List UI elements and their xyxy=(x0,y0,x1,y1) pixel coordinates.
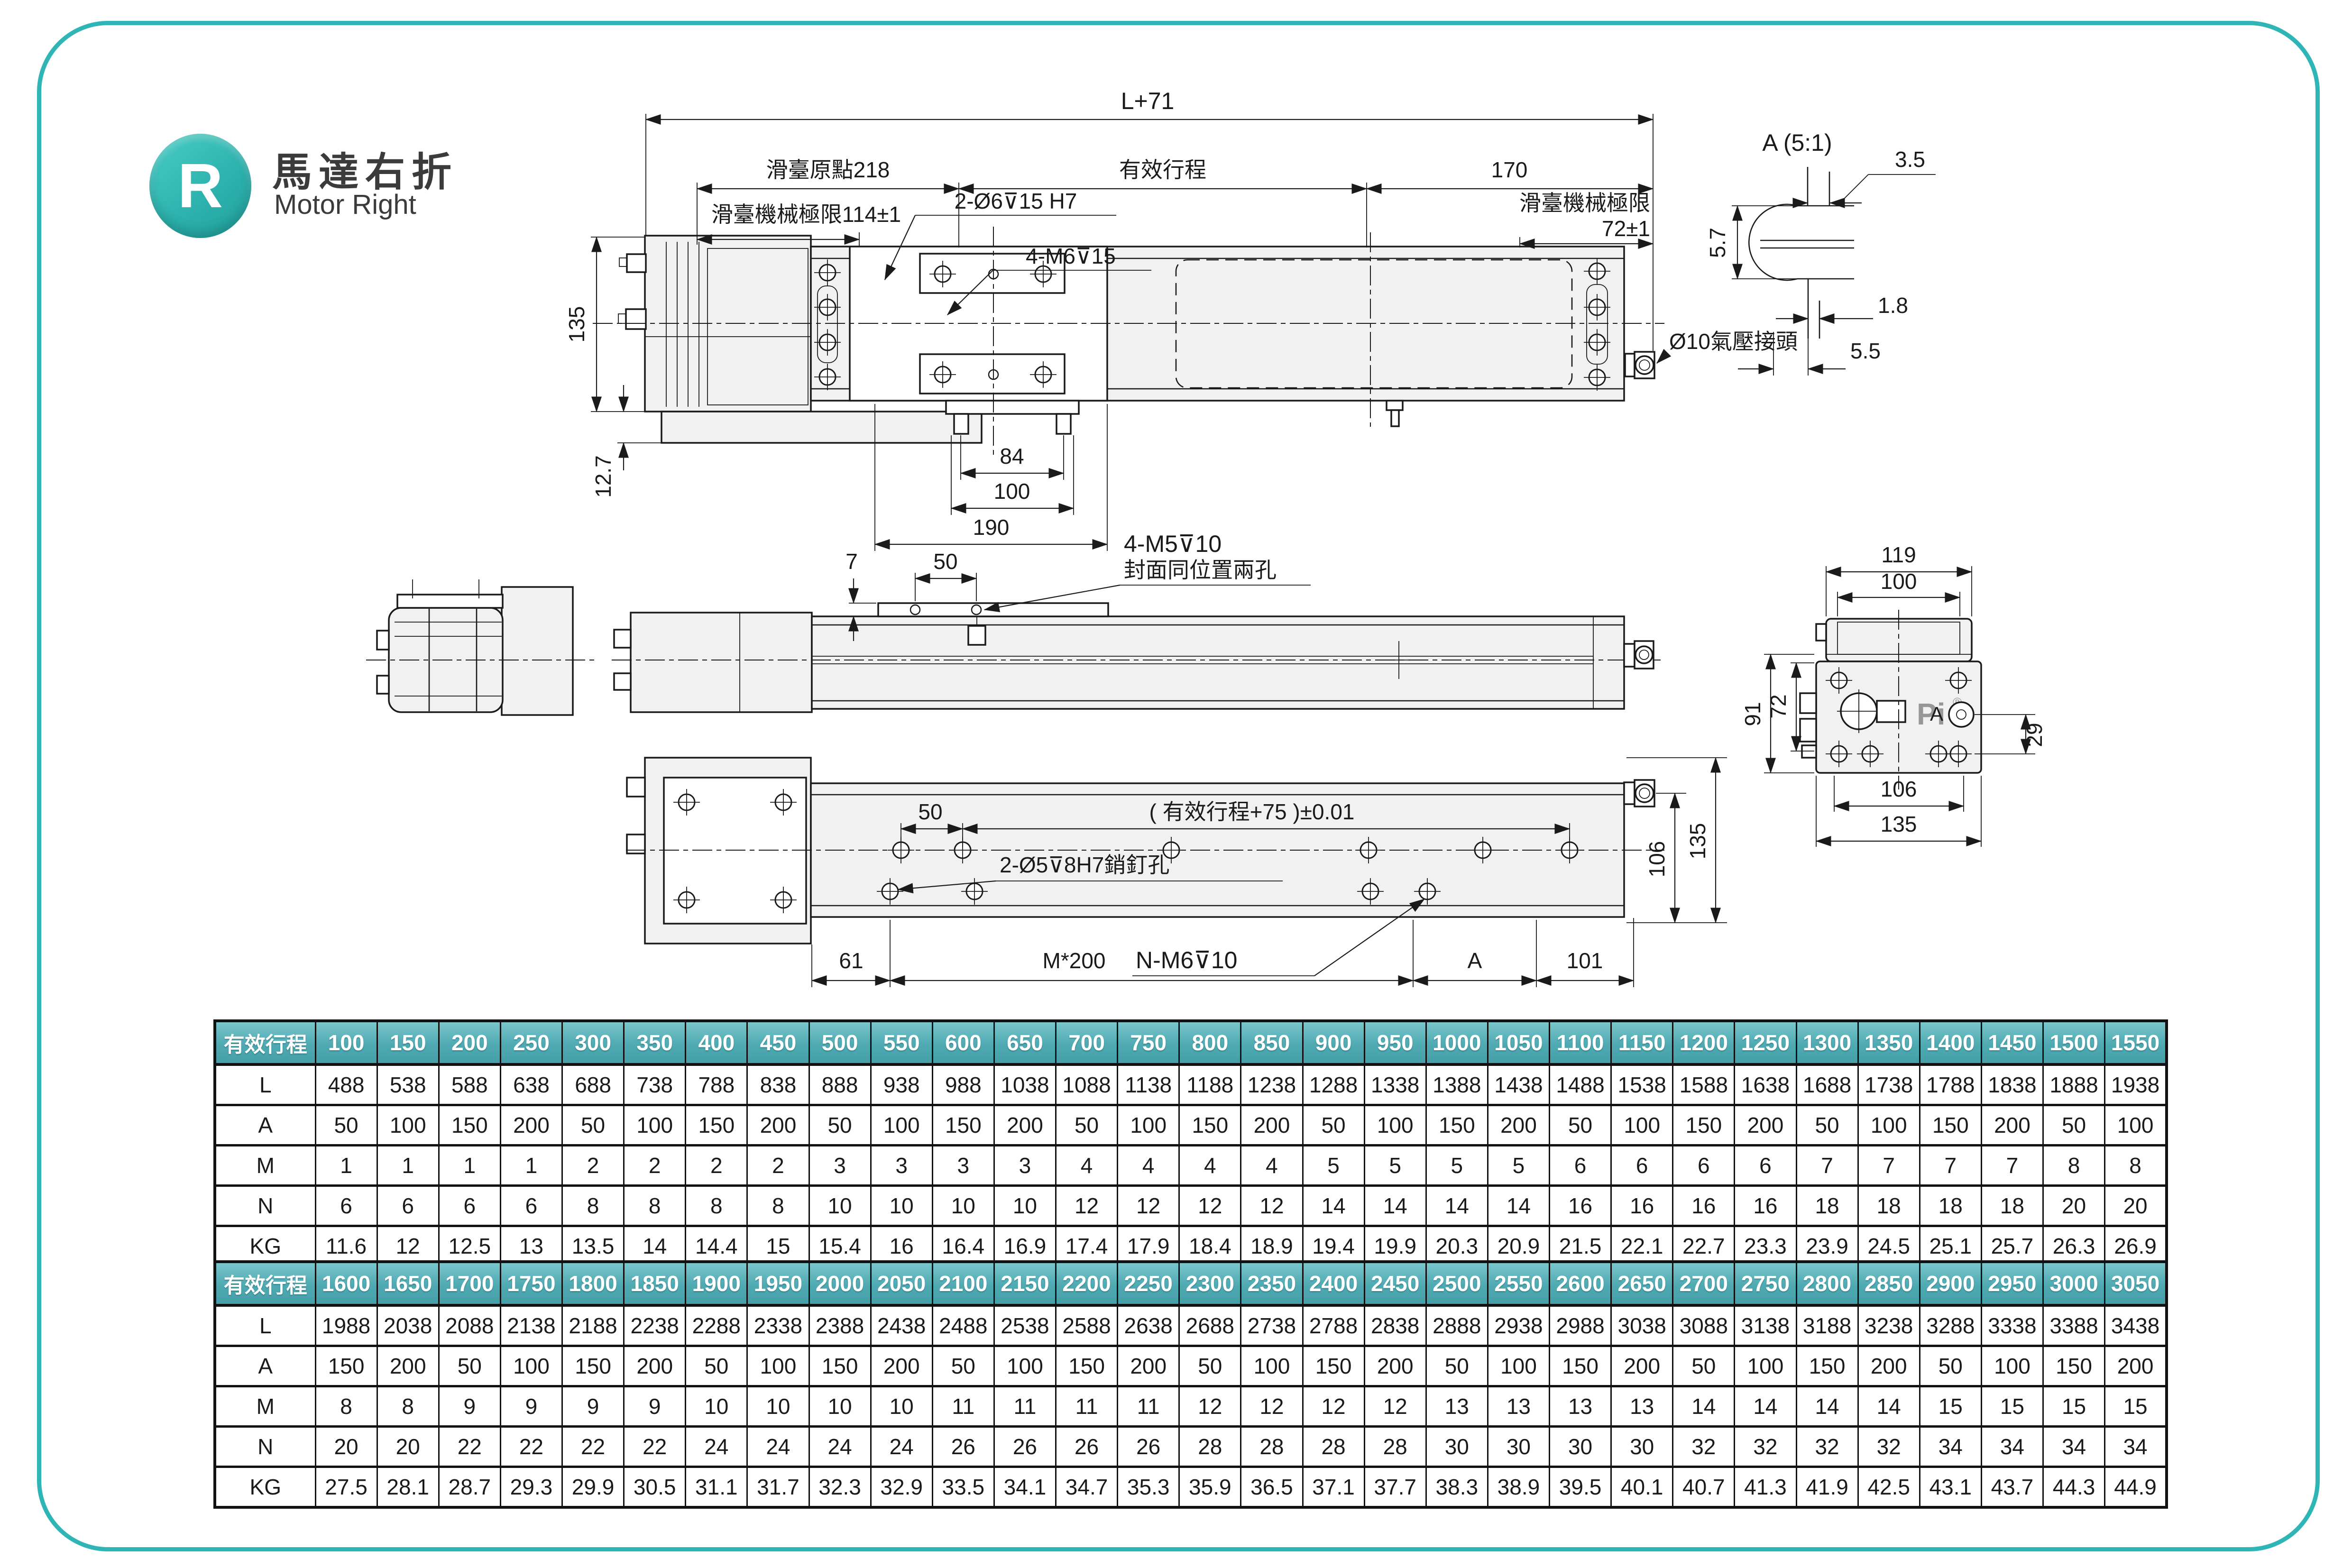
spec-value: 1738 xyxy=(1858,1064,1920,1105)
spec-value: 28.1 xyxy=(377,1467,439,1508)
dim-plate-190: 190 xyxy=(973,515,1010,540)
spec-value: 14 xyxy=(1303,1186,1364,1226)
stroke-column-header: 1200 xyxy=(1673,1021,1735,1064)
stroke-column-header: 2700 xyxy=(1673,1262,1735,1305)
spec-value: 50 xyxy=(1056,1105,1118,1146)
spec-value: 8 xyxy=(2043,1146,2105,1186)
spec-value: 1 xyxy=(377,1146,439,1186)
spec-value: 1 xyxy=(439,1146,500,1186)
spec-value: 11 xyxy=(1118,1386,1179,1427)
spec-value: 26 xyxy=(994,1427,1056,1467)
spec-value: 200 xyxy=(377,1346,439,1386)
spec-value: 2288 xyxy=(686,1305,747,1346)
spec-value: 10 xyxy=(932,1186,994,1226)
spec-value: 50 xyxy=(1796,1105,1858,1146)
spec-value: 50 xyxy=(1303,1105,1364,1146)
table-row: N202022222222242424242626262628282828303… xyxy=(215,1427,2167,1467)
spec-value: 1 xyxy=(315,1146,377,1186)
spec-value: 10 xyxy=(871,1386,932,1427)
stroke-table-1: 有效行程100150200250300350400450500550600650… xyxy=(213,1019,2168,1268)
dim-base-step-12-7: 12.7 xyxy=(591,455,616,498)
spec-value: 150 xyxy=(2043,1346,2105,1386)
spec-value: 14 xyxy=(1364,1186,1426,1226)
stroke-column-header: 1550 xyxy=(2105,1021,2167,1064)
spec-value: 28 xyxy=(1303,1427,1364,1467)
row-label: L xyxy=(215,1305,315,1346)
spec-value: 888 xyxy=(809,1064,871,1105)
spec-value: 8 xyxy=(747,1186,809,1226)
spec-value: 34.7 xyxy=(1056,1467,1118,1508)
detail-a-title: A (5:1) xyxy=(1762,129,1832,156)
spec-value: 28 xyxy=(1241,1427,1303,1467)
spec-value: 7 xyxy=(1981,1146,2043,1186)
spec-value: 14 xyxy=(1426,1186,1488,1226)
spec-value: 14 xyxy=(1858,1386,1920,1427)
spec-value: 150 xyxy=(809,1346,871,1386)
dim-bolts-106: 106 xyxy=(1881,777,1917,801)
table-row: L198820382088213821882238228823382388243… xyxy=(215,1305,2167,1346)
stroke-column-header: 2750 xyxy=(1735,1262,1796,1305)
stroke-column-header: 850 xyxy=(1241,1021,1303,1064)
spec-value: 200 xyxy=(500,1105,562,1146)
spec-value: 100 xyxy=(1858,1105,1920,1146)
dim-holes-50: 50 xyxy=(933,549,957,574)
spec-value: 2488 xyxy=(932,1305,994,1346)
spec-value: 838 xyxy=(747,1064,809,1105)
stroke-column-header: 1350 xyxy=(1858,1021,1920,1064)
table-row: M889999101010101111111112121212131313131… xyxy=(215,1386,2167,1427)
side-view-drawing: 7 50 4-M5⊽10 封面同位置兩孔 xyxy=(366,531,1664,715)
spec-value: 200 xyxy=(1364,1346,1426,1386)
spec-value: 36.5 xyxy=(1241,1467,1303,1508)
spec-value: 6 xyxy=(1673,1146,1735,1186)
spec-value: 30 xyxy=(1426,1427,1488,1467)
spec-value: 100 xyxy=(871,1105,932,1146)
spec-value: 12 xyxy=(1241,1186,1303,1226)
dim-pitch-m200: M*200 xyxy=(1043,948,1106,973)
stroke-column-header: 2900 xyxy=(1920,1262,1981,1305)
spec-value: 8 xyxy=(2105,1146,2167,1186)
stroke-column-header: 800 xyxy=(1179,1021,1241,1064)
spec-value: 100 xyxy=(1118,1105,1179,1146)
stroke-column-header: 2050 xyxy=(871,1262,932,1305)
spec-value: 1438 xyxy=(1488,1064,1549,1105)
spec-value: 31.7 xyxy=(747,1467,809,1508)
spec-value: 1388 xyxy=(1426,1064,1488,1105)
stroke-column-header: 1700 xyxy=(439,1262,500,1305)
spec-value: 34 xyxy=(2043,1427,2105,1467)
spec-value: 200 xyxy=(624,1346,686,1386)
row-label: A xyxy=(215,1105,315,1146)
spec-value: 200 xyxy=(1118,1346,1179,1386)
spec-value: 50 xyxy=(439,1346,500,1386)
spec-value: 11 xyxy=(1056,1386,1118,1427)
spec-value: 1138 xyxy=(1118,1064,1179,1105)
spec-value: 200 xyxy=(747,1105,809,1146)
spec-value: 22 xyxy=(439,1427,500,1467)
note-thread-holes: N-M6⊽10 xyxy=(1136,947,1237,973)
spec-value: 9 xyxy=(562,1386,624,1427)
row-label: M xyxy=(215,1386,315,1427)
spec-value: 100 xyxy=(500,1346,562,1386)
stroke-column-header: 1150 xyxy=(1611,1021,1673,1064)
spec-value: 32.9 xyxy=(871,1467,932,1508)
spec-value: 34 xyxy=(1981,1427,2043,1467)
stroke-column-header: 1400 xyxy=(1920,1021,1981,1064)
spec-value: 4 xyxy=(1241,1146,1303,1186)
spec-value: 37.1 xyxy=(1303,1467,1364,1508)
spec-value: 18 xyxy=(1920,1186,1981,1226)
stroke-column-header: 1900 xyxy=(686,1262,747,1305)
spec-value: 150 xyxy=(1796,1346,1858,1386)
stroke-column-header: 200 xyxy=(439,1021,500,1064)
spec-value: 12 xyxy=(1303,1386,1364,1427)
table-row: N666688881010101012121212141414141616161… xyxy=(215,1186,2167,1226)
spec-value: 150 xyxy=(1056,1346,1118,1386)
dim-pin-50: 50 xyxy=(918,799,942,824)
spec-value: 7 xyxy=(1796,1146,1858,1186)
spec-value: 6 xyxy=(439,1186,500,1226)
spec-value: 13 xyxy=(1488,1386,1549,1427)
stroke-column-header: 550 xyxy=(871,1021,932,1064)
spec-value: 8 xyxy=(686,1186,747,1226)
spec-value: 3288 xyxy=(1920,1305,1981,1346)
spec-value: 28 xyxy=(1179,1427,1241,1467)
stroke-column-header: 1100 xyxy=(1550,1021,1611,1064)
dim-body-91: 91 xyxy=(1740,702,1765,726)
spec-value: 2338 xyxy=(747,1305,809,1346)
spec-value: 50 xyxy=(1179,1346,1241,1386)
spec-value: 4 xyxy=(1179,1146,1241,1186)
bottom-view-drawing: 50 ( 有效行程+75 )±0.01 2-Ø5⊽8H7銷釘孔 61 M*200… xyxy=(626,758,1727,987)
spec-value: 200 xyxy=(994,1105,1056,1146)
stroke-column-header: 2850 xyxy=(1858,1262,1920,1305)
spec-value: 35.3 xyxy=(1118,1467,1179,1508)
stroke-column-header: 300 xyxy=(562,1021,624,1064)
row-label: M xyxy=(215,1146,315,1186)
spec-value: 3 xyxy=(871,1146,932,1186)
spec-value: 2038 xyxy=(377,1305,439,1346)
spec-value: 150 xyxy=(562,1346,624,1386)
stroke-header-label: 有效行程 xyxy=(215,1021,315,1064)
spec-value: 1338 xyxy=(1364,1064,1426,1105)
spec-value: 3338 xyxy=(1981,1305,2043,1346)
spec-value: 50 xyxy=(932,1346,994,1386)
spec-value: 37.7 xyxy=(1364,1467,1426,1508)
spec-value: 7 xyxy=(1858,1146,1920,1186)
spec-value: 16 xyxy=(1550,1186,1611,1226)
stroke-column-header: 600 xyxy=(932,1021,994,1064)
spec-value: 2788 xyxy=(1303,1305,1364,1346)
stroke-column-header: 450 xyxy=(747,1021,809,1064)
spec-value: 12 xyxy=(1118,1186,1179,1226)
spec-value: 2688 xyxy=(1179,1305,1241,1346)
spec-value: 1988 xyxy=(315,1305,377,1346)
spec-value: 150 xyxy=(439,1105,500,1146)
stroke-column-header: 1500 xyxy=(2043,1021,2105,1064)
stroke-column-header: 1850 xyxy=(624,1262,686,1305)
spec-value: 30 xyxy=(1488,1427,1549,1467)
stroke-column-header: 3050 xyxy=(2105,1262,2167,1305)
spec-value: 26 xyxy=(1118,1427,1179,1467)
spec-value: 31.1 xyxy=(686,1467,747,1508)
spec-value: 2088 xyxy=(439,1305,500,1346)
note-mech-limit-left: 滑臺機械極限114±1 xyxy=(711,202,901,227)
spec-value: 40.7 xyxy=(1673,1467,1735,1508)
spec-value: 5 xyxy=(1303,1146,1364,1186)
spec-value: 200 xyxy=(1735,1105,1796,1146)
spec-value: 2538 xyxy=(994,1305,1056,1346)
spec-value: 1788 xyxy=(1920,1064,1981,1105)
spec-value: 10 xyxy=(686,1386,747,1427)
spec-value: 100 xyxy=(1488,1346,1549,1386)
dim-base-135: 135 xyxy=(1881,812,1917,836)
spec-value: 1638 xyxy=(1735,1064,1796,1105)
stroke-column-header: 2650 xyxy=(1611,1262,1673,1305)
spec-value: 2938 xyxy=(1488,1305,1549,1346)
spec-value: 26 xyxy=(1056,1427,1118,1467)
spec-value: 100 xyxy=(994,1346,1056,1386)
spec-value: 200 xyxy=(1241,1105,1303,1146)
spec-value: 200 xyxy=(1611,1346,1673,1386)
spec-value: 150 xyxy=(1673,1105,1735,1146)
spec-value: 40.1 xyxy=(1611,1467,1673,1508)
spec-value: 42.5 xyxy=(1858,1467,1920,1508)
spec-value: 18 xyxy=(1858,1186,1920,1226)
spec-value: 4 xyxy=(1056,1146,1118,1186)
table-row: A150200501001502005010015020050100150200… xyxy=(215,1346,2167,1386)
spec-value: 3188 xyxy=(1796,1305,1858,1346)
spec-value: 2388 xyxy=(809,1305,871,1346)
spec-value: 10 xyxy=(809,1186,871,1226)
spec-value: 1188 xyxy=(1179,1064,1241,1105)
spec-value: 200 xyxy=(2105,1346,2167,1386)
spec-value: 100 xyxy=(747,1346,809,1386)
spec-value: 13 xyxy=(1426,1386,1488,1427)
spec-value: 988 xyxy=(932,1064,994,1105)
spec-value: 2 xyxy=(562,1146,624,1186)
spec-value: 1938 xyxy=(2105,1064,2167,1105)
dim-hump-7: 7 xyxy=(845,549,858,574)
spec-value: 10 xyxy=(747,1386,809,1427)
spec-value: 43.7 xyxy=(1981,1467,2043,1508)
spec-value: 538 xyxy=(377,1064,439,1105)
stroke-column-header: 2100 xyxy=(932,1262,994,1305)
spec-value: 3038 xyxy=(1611,1305,1673,1346)
spec-value: 150 xyxy=(315,1346,377,1386)
spec-value: 100 xyxy=(1241,1346,1303,1386)
spec-value: 588 xyxy=(439,1064,500,1105)
spec-value: 14 xyxy=(1673,1386,1735,1427)
spec-value: 4 xyxy=(1118,1146,1179,1186)
detail-dim-5-7: 5.7 xyxy=(1705,228,1730,258)
spec-value: 8 xyxy=(315,1386,377,1427)
spec-value: 33.5 xyxy=(932,1467,994,1508)
spec-value: 28 xyxy=(1364,1427,1426,1467)
spec-value: 32 xyxy=(1673,1427,1735,1467)
spec-value: 15 xyxy=(1920,1386,1981,1427)
spec-value: 27.5 xyxy=(315,1467,377,1508)
detail-a-pointer-label: A xyxy=(1930,703,1943,725)
stroke-column-header: 1050 xyxy=(1488,1021,1549,1064)
spec-value: 15 xyxy=(2105,1386,2167,1427)
spec-value: 43.1 xyxy=(1920,1467,1981,1508)
stroke-column-header: 3000 xyxy=(2043,1262,2105,1305)
spec-value: 12 xyxy=(1364,1386,1426,1427)
spec-value: 3388 xyxy=(2043,1305,2105,1346)
spec-value: 2888 xyxy=(1426,1305,1488,1346)
spec-value: 150 xyxy=(932,1105,994,1146)
spec-value: 100 xyxy=(2105,1105,2167,1146)
spec-value: 150 xyxy=(1550,1346,1611,1386)
spec-value: 2638 xyxy=(1118,1305,1179,1346)
spec-value: 39.5 xyxy=(1550,1467,1611,1508)
spec-value: 3238 xyxy=(1858,1305,1920,1346)
spec-value: 6 xyxy=(500,1186,562,1226)
spec-value: 688 xyxy=(562,1064,624,1105)
detail-dim-5-5: 5.5 xyxy=(1850,339,1881,363)
spec-value: 488 xyxy=(315,1064,377,1105)
spec-value: 13 xyxy=(1611,1386,1673,1427)
stroke-column-header: 900 xyxy=(1303,1021,1364,1064)
spec-value: 50 xyxy=(562,1105,624,1146)
spec-value: 34 xyxy=(1920,1427,1981,1467)
dim-body-72: 72 xyxy=(1766,694,1791,718)
spec-value: 2188 xyxy=(562,1305,624,1346)
stroke-column-header: 2150 xyxy=(994,1262,1056,1305)
spec-value: 2838 xyxy=(1364,1305,1426,1346)
spec-value: 6 xyxy=(1611,1146,1673,1186)
note-air-fitting: Ø10氣壓接頭 xyxy=(1669,329,1798,354)
spec-value: 32 xyxy=(1735,1427,1796,1467)
note-cover-screws-2: 封面同位置兩孔 xyxy=(1124,558,1277,582)
stroke-column-header: 650 xyxy=(994,1021,1056,1064)
spec-value: 100 xyxy=(1981,1346,2043,1386)
spec-value: 788 xyxy=(686,1064,747,1105)
spec-value: 22 xyxy=(624,1427,686,1467)
spec-value: 10 xyxy=(871,1186,932,1226)
spec-value: 15 xyxy=(1981,1386,2043,1427)
stroke-column-header: 2500 xyxy=(1426,1262,1488,1305)
spec-value: 1588 xyxy=(1673,1064,1735,1105)
end-view-drawing: Pi ® A 119 100 91 72 29 106 135 xyxy=(1740,542,2047,847)
spec-value: 34.1 xyxy=(994,1467,1056,1508)
spec-value: 13 xyxy=(1550,1386,1611,1427)
stroke-column-header: 2600 xyxy=(1550,1262,1611,1305)
spec-value: 32 xyxy=(1858,1427,1920,1467)
spec-value: 8 xyxy=(377,1386,439,1427)
stroke-column-header: 2250 xyxy=(1118,1262,1179,1305)
spec-value: 41.9 xyxy=(1796,1467,1858,1508)
stroke-table-2: 有效行程160016501700175018001850190019502000… xyxy=(213,1260,2168,1509)
dim-right-170: 170 xyxy=(1491,157,1528,182)
spec-value: 34 xyxy=(2105,1427,2167,1467)
stroke-column-header: 1650 xyxy=(377,1262,439,1305)
stroke-column-header: 400 xyxy=(686,1021,747,1064)
spec-value: 24 xyxy=(747,1427,809,1467)
stroke-column-header: 950 xyxy=(1364,1021,1426,1064)
spec-value: 100 xyxy=(624,1105,686,1146)
spec-value: 9 xyxy=(500,1386,562,1427)
spec-value: 5 xyxy=(1364,1146,1426,1186)
spec-value: 20 xyxy=(315,1427,377,1467)
spec-value: 10 xyxy=(809,1386,871,1427)
stroke-column-header: 2800 xyxy=(1796,1262,1858,1305)
spec-value: 150 xyxy=(1303,1346,1364,1386)
spec-value: 5 xyxy=(1488,1146,1549,1186)
spec-value: 100 xyxy=(1364,1105,1426,1146)
dim-feet-84: 84 xyxy=(1000,444,1024,468)
stroke-column-header: 1450 xyxy=(1981,1021,2043,1064)
spec-value: 2588 xyxy=(1056,1305,1118,1346)
spec-value: 10 xyxy=(994,1186,1056,1226)
spec-value: 26 xyxy=(932,1427,994,1467)
spec-value: 29.3 xyxy=(500,1467,562,1508)
stroke-column-header: 1250 xyxy=(1735,1021,1796,1064)
row-label: KG xyxy=(215,1467,315,1508)
spec-value: 2 xyxy=(624,1146,686,1186)
stroke-column-header: 2400 xyxy=(1303,1262,1364,1305)
spec-value: 14 xyxy=(1796,1386,1858,1427)
spec-value: 2 xyxy=(747,1146,809,1186)
detail-dim-3-5: 3.5 xyxy=(1895,147,1925,172)
spec-value: 3138 xyxy=(1735,1305,1796,1346)
stroke-spec-table: 有效行程100150200250300350400450500550600650… xyxy=(213,1019,2168,1268)
stroke-spec-table: 有效行程160016501700175018001850190019502000… xyxy=(213,1260,2168,1509)
row-label: N xyxy=(215,1427,315,1467)
spec-value: 200 xyxy=(1981,1105,2043,1146)
dim-fitting-height-106: 106 xyxy=(1645,841,1669,878)
dim-left-61: 61 xyxy=(839,948,863,973)
detail-dim-1-8: 1.8 xyxy=(1878,293,1908,318)
spec-value: 50 xyxy=(315,1105,377,1146)
spec-value: 18 xyxy=(1796,1186,1858,1226)
spec-value: 150 xyxy=(1179,1105,1241,1146)
spec-value: 11 xyxy=(994,1386,1056,1427)
spec-value: 7 xyxy=(1920,1146,1981,1186)
spec-value: 50 xyxy=(2043,1105,2105,1146)
stroke-column-header: 1950 xyxy=(747,1262,809,1305)
spec-value: 16 xyxy=(1611,1186,1673,1226)
spec-value: 9 xyxy=(624,1386,686,1427)
stroke-column-header: 1000 xyxy=(1426,1021,1488,1064)
spec-value: 20 xyxy=(377,1427,439,1467)
spec-value: 15 xyxy=(2043,1386,2105,1427)
spec-value: 100 xyxy=(1735,1346,1796,1386)
spec-value: 18 xyxy=(1981,1186,2043,1226)
spec-value: 9 xyxy=(439,1386,500,1427)
dim-slide-origin: 滑臺原點218 xyxy=(766,157,890,182)
stroke-column-header: 700 xyxy=(1056,1021,1118,1064)
spec-value: 44.9 xyxy=(2105,1467,2167,1508)
dim-cover-100: 100 xyxy=(1881,569,1917,594)
spec-value: 3 xyxy=(932,1146,994,1186)
spec-value: 3088 xyxy=(1673,1305,1735,1346)
spec-value: 1488 xyxy=(1550,1064,1611,1105)
spec-value: 16 xyxy=(1673,1186,1735,1226)
spec-value: 150 xyxy=(1426,1105,1488,1146)
spec-value: 2438 xyxy=(871,1305,932,1346)
spec-value: 1838 xyxy=(1981,1064,2043,1105)
spec-value: 2 xyxy=(686,1146,747,1186)
spec-value: 100 xyxy=(1611,1105,1673,1146)
table-row: A501001502005010015020050100150200501001… xyxy=(215,1105,2167,1146)
spec-value: 3 xyxy=(994,1146,1056,1186)
spec-value: 150 xyxy=(1920,1105,1981,1146)
spec-value: 38.9 xyxy=(1488,1467,1549,1508)
spec-value: 22 xyxy=(562,1427,624,1467)
spec-value: 12 xyxy=(1241,1386,1303,1427)
